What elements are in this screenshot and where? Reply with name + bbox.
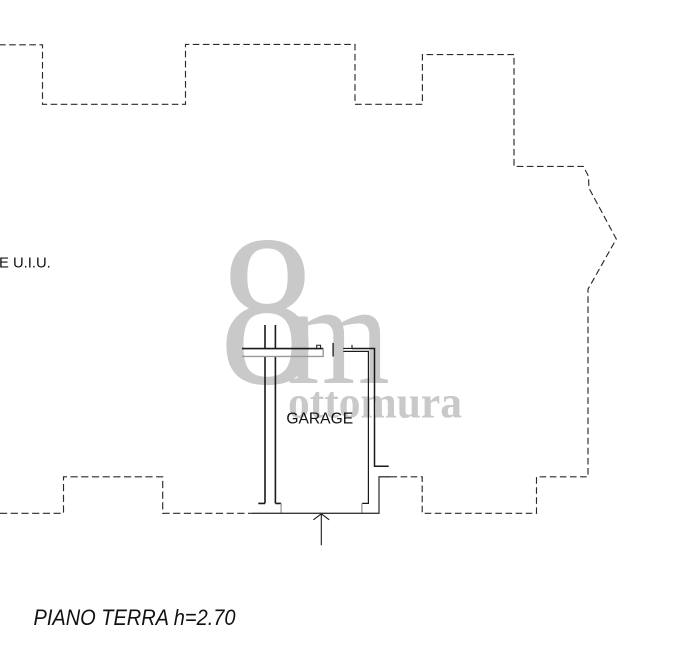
- svg-text:E U.I.U.: E U.I.U.: [0, 255, 51, 271]
- svg-text:PIANO TERRA h=2.70: PIANO TERRA h=2.70: [34, 605, 237, 630]
- svg-text:GARAGE: GARAGE: [286, 410, 353, 427]
